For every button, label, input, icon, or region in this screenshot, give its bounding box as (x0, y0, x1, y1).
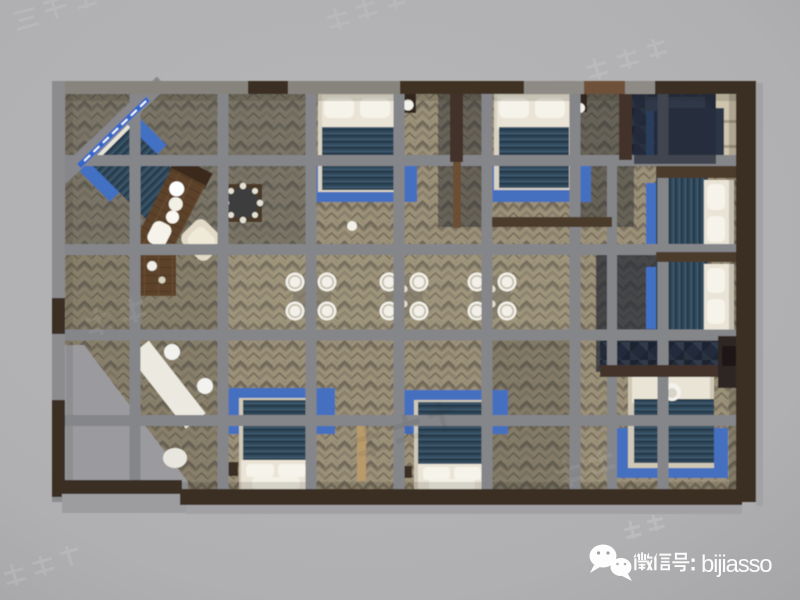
svg-text:bijiasso: bijiasso (701, 551, 772, 578)
